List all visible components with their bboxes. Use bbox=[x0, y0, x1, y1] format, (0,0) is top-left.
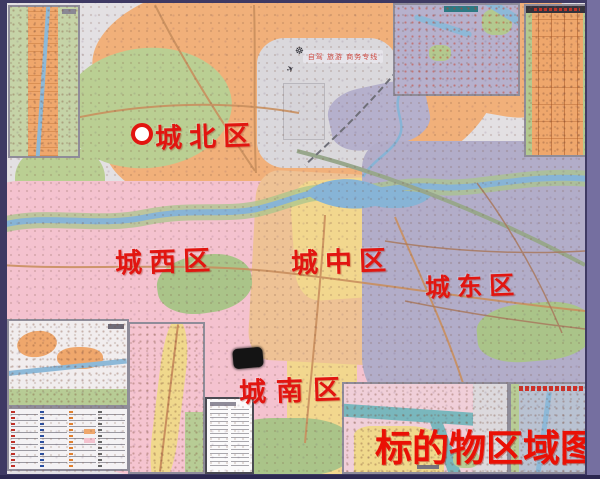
legend-symbol-column bbox=[69, 411, 73, 467]
legend-column bbox=[98, 411, 125, 467]
north-stream bbox=[363, 93, 401, 177]
legend-symbol-column bbox=[40, 411, 44, 467]
inset-texture bbox=[9, 321, 127, 405]
route-banner: 自驾 旅游 商务专线 bbox=[303, 50, 383, 63]
target-property-marker bbox=[232, 347, 264, 370]
inset-texture bbox=[395, 5, 518, 94]
legend-symbol-column bbox=[11, 411, 15, 467]
district-label-east: 城东区 bbox=[424, 265, 521, 304]
inset-map-top-left bbox=[8, 5, 80, 158]
north-district-circle-marker bbox=[131, 123, 153, 145]
minor-roads bbox=[385, 183, 585, 333]
route-banner-text: 自驾 旅游 商务专线 bbox=[308, 52, 378, 62]
district-label-south: 城南区 bbox=[238, 367, 350, 410]
city-map: ☸ ✈ 自驾 旅游 商务专线 城北区 城西区 城中区 城东区 城南区 标的物区域… bbox=[7, 3, 585, 474]
inset-map-top-right-grid bbox=[524, 4, 585, 157]
page-title: 标的物区域图 bbox=[375, 418, 585, 472]
inset-map-top-right-city bbox=[393, 3, 520, 96]
inset-map-bottom-left bbox=[7, 319, 129, 407]
inset-texture bbox=[526, 6, 585, 155]
frame-right-edge bbox=[587, 0, 600, 479]
district-label-central: 城中区 bbox=[290, 238, 393, 281]
legend-area-swatch bbox=[84, 438, 95, 443]
index-title-bar bbox=[210, 402, 236, 406]
inset-texture bbox=[130, 324, 203, 472]
inset-texture bbox=[10, 7, 78, 156]
district-label-north: 城北区 bbox=[154, 113, 257, 156]
frame-bottom-edge bbox=[0, 475, 600, 479]
legend-column bbox=[11, 411, 38, 467]
map-legend-box bbox=[7, 407, 129, 471]
legend-column bbox=[69, 411, 96, 467]
legend-road-swatch bbox=[84, 429, 95, 434]
legend-symbol-column bbox=[98, 411, 102, 467]
index-text-column bbox=[210, 409, 228, 468]
index-text-column bbox=[231, 409, 249, 468]
district-label-west: 城西区 bbox=[114, 238, 217, 281]
inset-map-south-strip bbox=[128, 322, 205, 474]
legend-column bbox=[40, 411, 67, 467]
map-screenshot: ☸ ✈ 自驾 旅游 商务专线 城北区 城西区 城中区 城东区 城南区 标的物区域… bbox=[0, 0, 600, 479]
